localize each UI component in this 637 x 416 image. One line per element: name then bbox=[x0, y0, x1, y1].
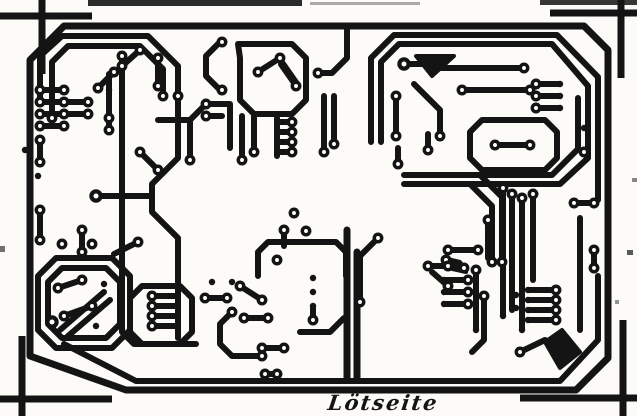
solder-pad bbox=[444, 282, 451, 289]
solder-pad bbox=[60, 122, 67, 129]
solder-pad-large bbox=[399, 59, 408, 68]
solder-pad bbox=[302, 227, 309, 234]
solder-pad bbox=[154, 54, 161, 61]
via-dot bbox=[310, 289, 316, 295]
solder-pad bbox=[374, 234, 381, 241]
solder-pad bbox=[288, 118, 295, 125]
solder-pad bbox=[472, 266, 479, 273]
solder-pad bbox=[392, 92, 399, 99]
via-dot bbox=[106, 87, 112, 93]
solder-pad bbox=[228, 308, 235, 315]
solder-pad bbox=[444, 246, 451, 253]
solder-pad bbox=[552, 306, 559, 313]
solder-pad bbox=[491, 141, 498, 148]
solder-pad bbox=[36, 86, 43, 93]
solder-pad-large bbox=[91, 191, 100, 200]
solder-pad bbox=[276, 54, 283, 61]
solder-pad bbox=[273, 370, 280, 377]
via-dot bbox=[173, 293, 179, 299]
solder-pad bbox=[392, 132, 399, 139]
solder-pad bbox=[202, 100, 209, 107]
solder-pad bbox=[330, 140, 337, 147]
solder-pad bbox=[590, 199, 597, 206]
solder-pad bbox=[320, 148, 327, 155]
solder-pad bbox=[174, 92, 181, 99]
via-dot bbox=[500, 313, 506, 319]
solder-side-label: Lötseite bbox=[326, 390, 450, 415]
solder-pad bbox=[48, 114, 55, 121]
solder-pad bbox=[474, 246, 481, 253]
solder-pad bbox=[60, 110, 67, 117]
solder-pad bbox=[36, 158, 43, 165]
solder-pad bbox=[570, 199, 577, 206]
solder-pad bbox=[105, 126, 112, 133]
solder-pad-large bbox=[47, 317, 56, 326]
solder-pad bbox=[464, 288, 471, 295]
via-dot bbox=[93, 323, 99, 329]
solder-pad bbox=[54, 284, 61, 291]
scan-artifact bbox=[0, 246, 5, 252]
solder-pad bbox=[236, 282, 243, 289]
via-dot bbox=[22, 147, 28, 153]
via-dot bbox=[557, 105, 563, 111]
solder-pad bbox=[498, 258, 505, 265]
via-dot bbox=[173, 313, 179, 319]
solder-pad bbox=[499, 184, 506, 191]
solder-pad bbox=[288, 128, 295, 135]
solder-pad bbox=[36, 110, 43, 117]
via-dot bbox=[525, 297, 531, 303]
solder-pad bbox=[36, 98, 43, 105]
solder-pad bbox=[464, 276, 471, 283]
solder-pad bbox=[218, 86, 225, 93]
scan-artifact bbox=[615, 300, 619, 304]
solder-pad bbox=[238, 156, 245, 163]
solder-pad bbox=[254, 68, 261, 75]
solder-pad bbox=[552, 316, 559, 323]
via-dot bbox=[101, 281, 107, 287]
solder-pad bbox=[148, 292, 155, 299]
via-dot bbox=[441, 301, 447, 307]
solder-pad bbox=[309, 316, 316, 323]
solder-pad bbox=[532, 104, 539, 111]
solder-pad bbox=[288, 148, 295, 155]
solder-pad bbox=[36, 122, 43, 129]
solder-pad bbox=[529, 190, 536, 197]
solder-pad bbox=[84, 98, 91, 105]
solder-pad bbox=[88, 302, 95, 309]
solder-pad bbox=[148, 302, 155, 309]
solder-pad bbox=[292, 82, 299, 89]
solder-pad bbox=[590, 264, 597, 271]
solder-pad bbox=[58, 240, 65, 247]
solder-pad bbox=[36, 236, 43, 243]
solder-pad bbox=[480, 292, 487, 299]
solder-pad bbox=[590, 246, 597, 253]
solder-pad bbox=[159, 92, 166, 99]
solder-pad bbox=[424, 262, 431, 269]
via-dot bbox=[519, 327, 525, 333]
solder-pad bbox=[460, 264, 467, 271]
solder-pad bbox=[458, 86, 465, 93]
solder-pad bbox=[444, 262, 451, 269]
via-dot bbox=[513, 292, 519, 298]
via-dot bbox=[441, 277, 447, 283]
solder-pad bbox=[552, 296, 559, 303]
solder-pad bbox=[424, 146, 431, 153]
solder-pad bbox=[154, 166, 161, 173]
solder-pad bbox=[202, 112, 209, 119]
solder-pad bbox=[60, 312, 67, 319]
via-dot bbox=[525, 287, 531, 293]
solder-pad bbox=[288, 138, 295, 145]
scan-artifact bbox=[310, 2, 420, 5]
solder-pad bbox=[134, 238, 141, 245]
solder-pad bbox=[60, 98, 67, 105]
solder-pad bbox=[394, 160, 401, 167]
solder-pad bbox=[258, 344, 265, 351]
solder-pad bbox=[520, 64, 527, 71]
solder-pad bbox=[436, 132, 443, 139]
solder-pad bbox=[148, 312, 155, 319]
via-dot bbox=[557, 81, 563, 87]
solder-pad bbox=[280, 344, 287, 351]
solder-pad bbox=[78, 248, 85, 255]
solder-pad bbox=[118, 52, 125, 59]
via-dot bbox=[441, 289, 447, 295]
solder-pad bbox=[258, 296, 265, 303]
solder-pad bbox=[118, 62, 125, 69]
solder-pad bbox=[201, 294, 208, 301]
solder-pad bbox=[356, 298, 363, 305]
solder-pad bbox=[508, 190, 515, 197]
solder-pad bbox=[580, 148, 587, 155]
solder-pad bbox=[136, 46, 143, 53]
pcb-layout-diagram bbox=[0, 0, 637, 416]
via-dot bbox=[209, 279, 215, 285]
solder-pad bbox=[261, 370, 268, 377]
solder-pad bbox=[84, 110, 91, 117]
solder-pad bbox=[136, 148, 143, 155]
via-dot bbox=[581, 125, 587, 131]
solder-pad bbox=[488, 258, 495, 265]
solder-pad bbox=[264, 314, 271, 321]
solder-pad bbox=[273, 256, 280, 263]
solder-pad bbox=[110, 68, 117, 75]
solder-pad bbox=[484, 216, 491, 223]
solder-pad bbox=[223, 294, 230, 301]
via-dot bbox=[513, 305, 519, 311]
scan-background bbox=[0, 0, 637, 416]
scan-artifact bbox=[632, 178, 637, 182]
scan-artifact bbox=[88, 0, 302, 6]
via-dot bbox=[452, 261, 458, 267]
via-dot bbox=[557, 93, 563, 99]
solder-pad bbox=[218, 38, 225, 45]
solder-pad bbox=[36, 206, 43, 213]
solder-pad bbox=[148, 322, 155, 329]
solder-pad bbox=[532, 92, 539, 99]
solder-pad bbox=[154, 82, 161, 89]
scan-artifact bbox=[627, 250, 633, 255]
solder-pad bbox=[518, 194, 525, 201]
solder-pad bbox=[280, 226, 287, 233]
via-dot bbox=[473, 327, 479, 333]
pcb-artwork-scan: Lötseite bbox=[0, 0, 637, 416]
solder-pad bbox=[250, 148, 257, 155]
via-dot bbox=[229, 279, 235, 285]
solder-pad bbox=[105, 114, 112, 121]
via-dot bbox=[310, 303, 316, 309]
solder-pad bbox=[552, 286, 559, 293]
solder-pad bbox=[532, 80, 539, 87]
solder-pad bbox=[516, 348, 523, 355]
solder-pad bbox=[78, 276, 85, 283]
solder-pad bbox=[186, 156, 193, 163]
via-dot bbox=[106, 75, 112, 81]
solder-pad bbox=[94, 84, 101, 91]
solder-pad bbox=[314, 69, 321, 76]
via-dot bbox=[35, 173, 41, 179]
solder-pad bbox=[240, 314, 247, 321]
via-dot bbox=[310, 275, 316, 281]
solder-pad bbox=[290, 209, 297, 216]
via-dot bbox=[525, 307, 531, 313]
solder-pad bbox=[36, 136, 43, 143]
via-dot bbox=[525, 317, 531, 323]
solder-pad bbox=[78, 226, 85, 233]
solder-pad bbox=[88, 240, 95, 247]
solder-pad bbox=[60, 86, 67, 93]
solder-pad bbox=[464, 300, 471, 307]
solder-pad bbox=[526, 141, 533, 148]
